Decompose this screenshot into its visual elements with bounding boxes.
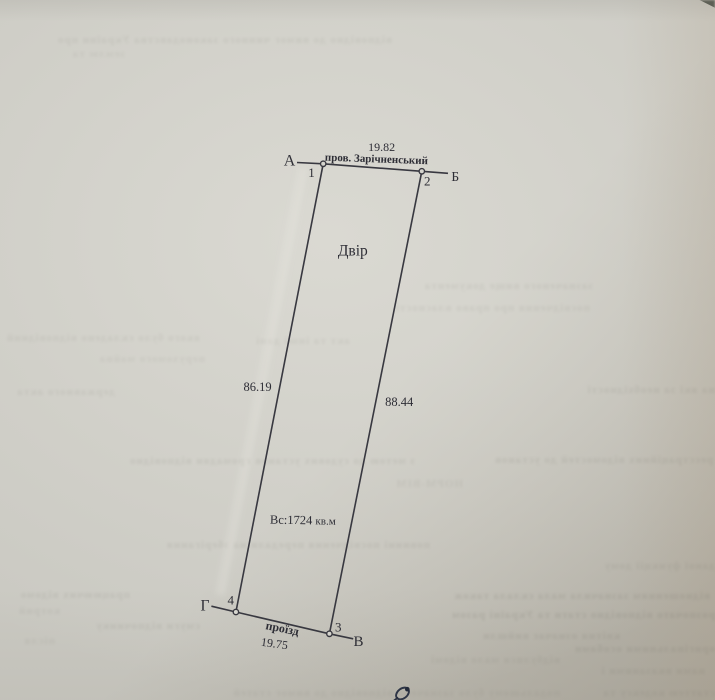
- svg-text:3: 3: [335, 619, 342, 634]
- svg-text:19.82: 19.82: [368, 140, 395, 154]
- svg-text:А: А: [284, 153, 296, 170]
- svg-text:86.19: 86.19: [244, 380, 272, 394]
- svg-text:Двір: Двір: [338, 243, 368, 260]
- svg-text:Г: Г: [201, 598, 210, 615]
- svg-text:Вс:1724 кв.м: Вс:1724 кв.м: [270, 513, 336, 528]
- svg-text:В: В: [353, 634, 363, 650]
- svg-text:4: 4: [227, 593, 234, 608]
- svg-text:88.44: 88.44: [385, 395, 414, 409]
- svg-text:19.75: 19.75: [260, 635, 289, 653]
- svg-text:Б: Б: [451, 169, 459, 184]
- svg-text:1: 1: [308, 165, 315, 180]
- svg-text:2: 2: [424, 174, 431, 189]
